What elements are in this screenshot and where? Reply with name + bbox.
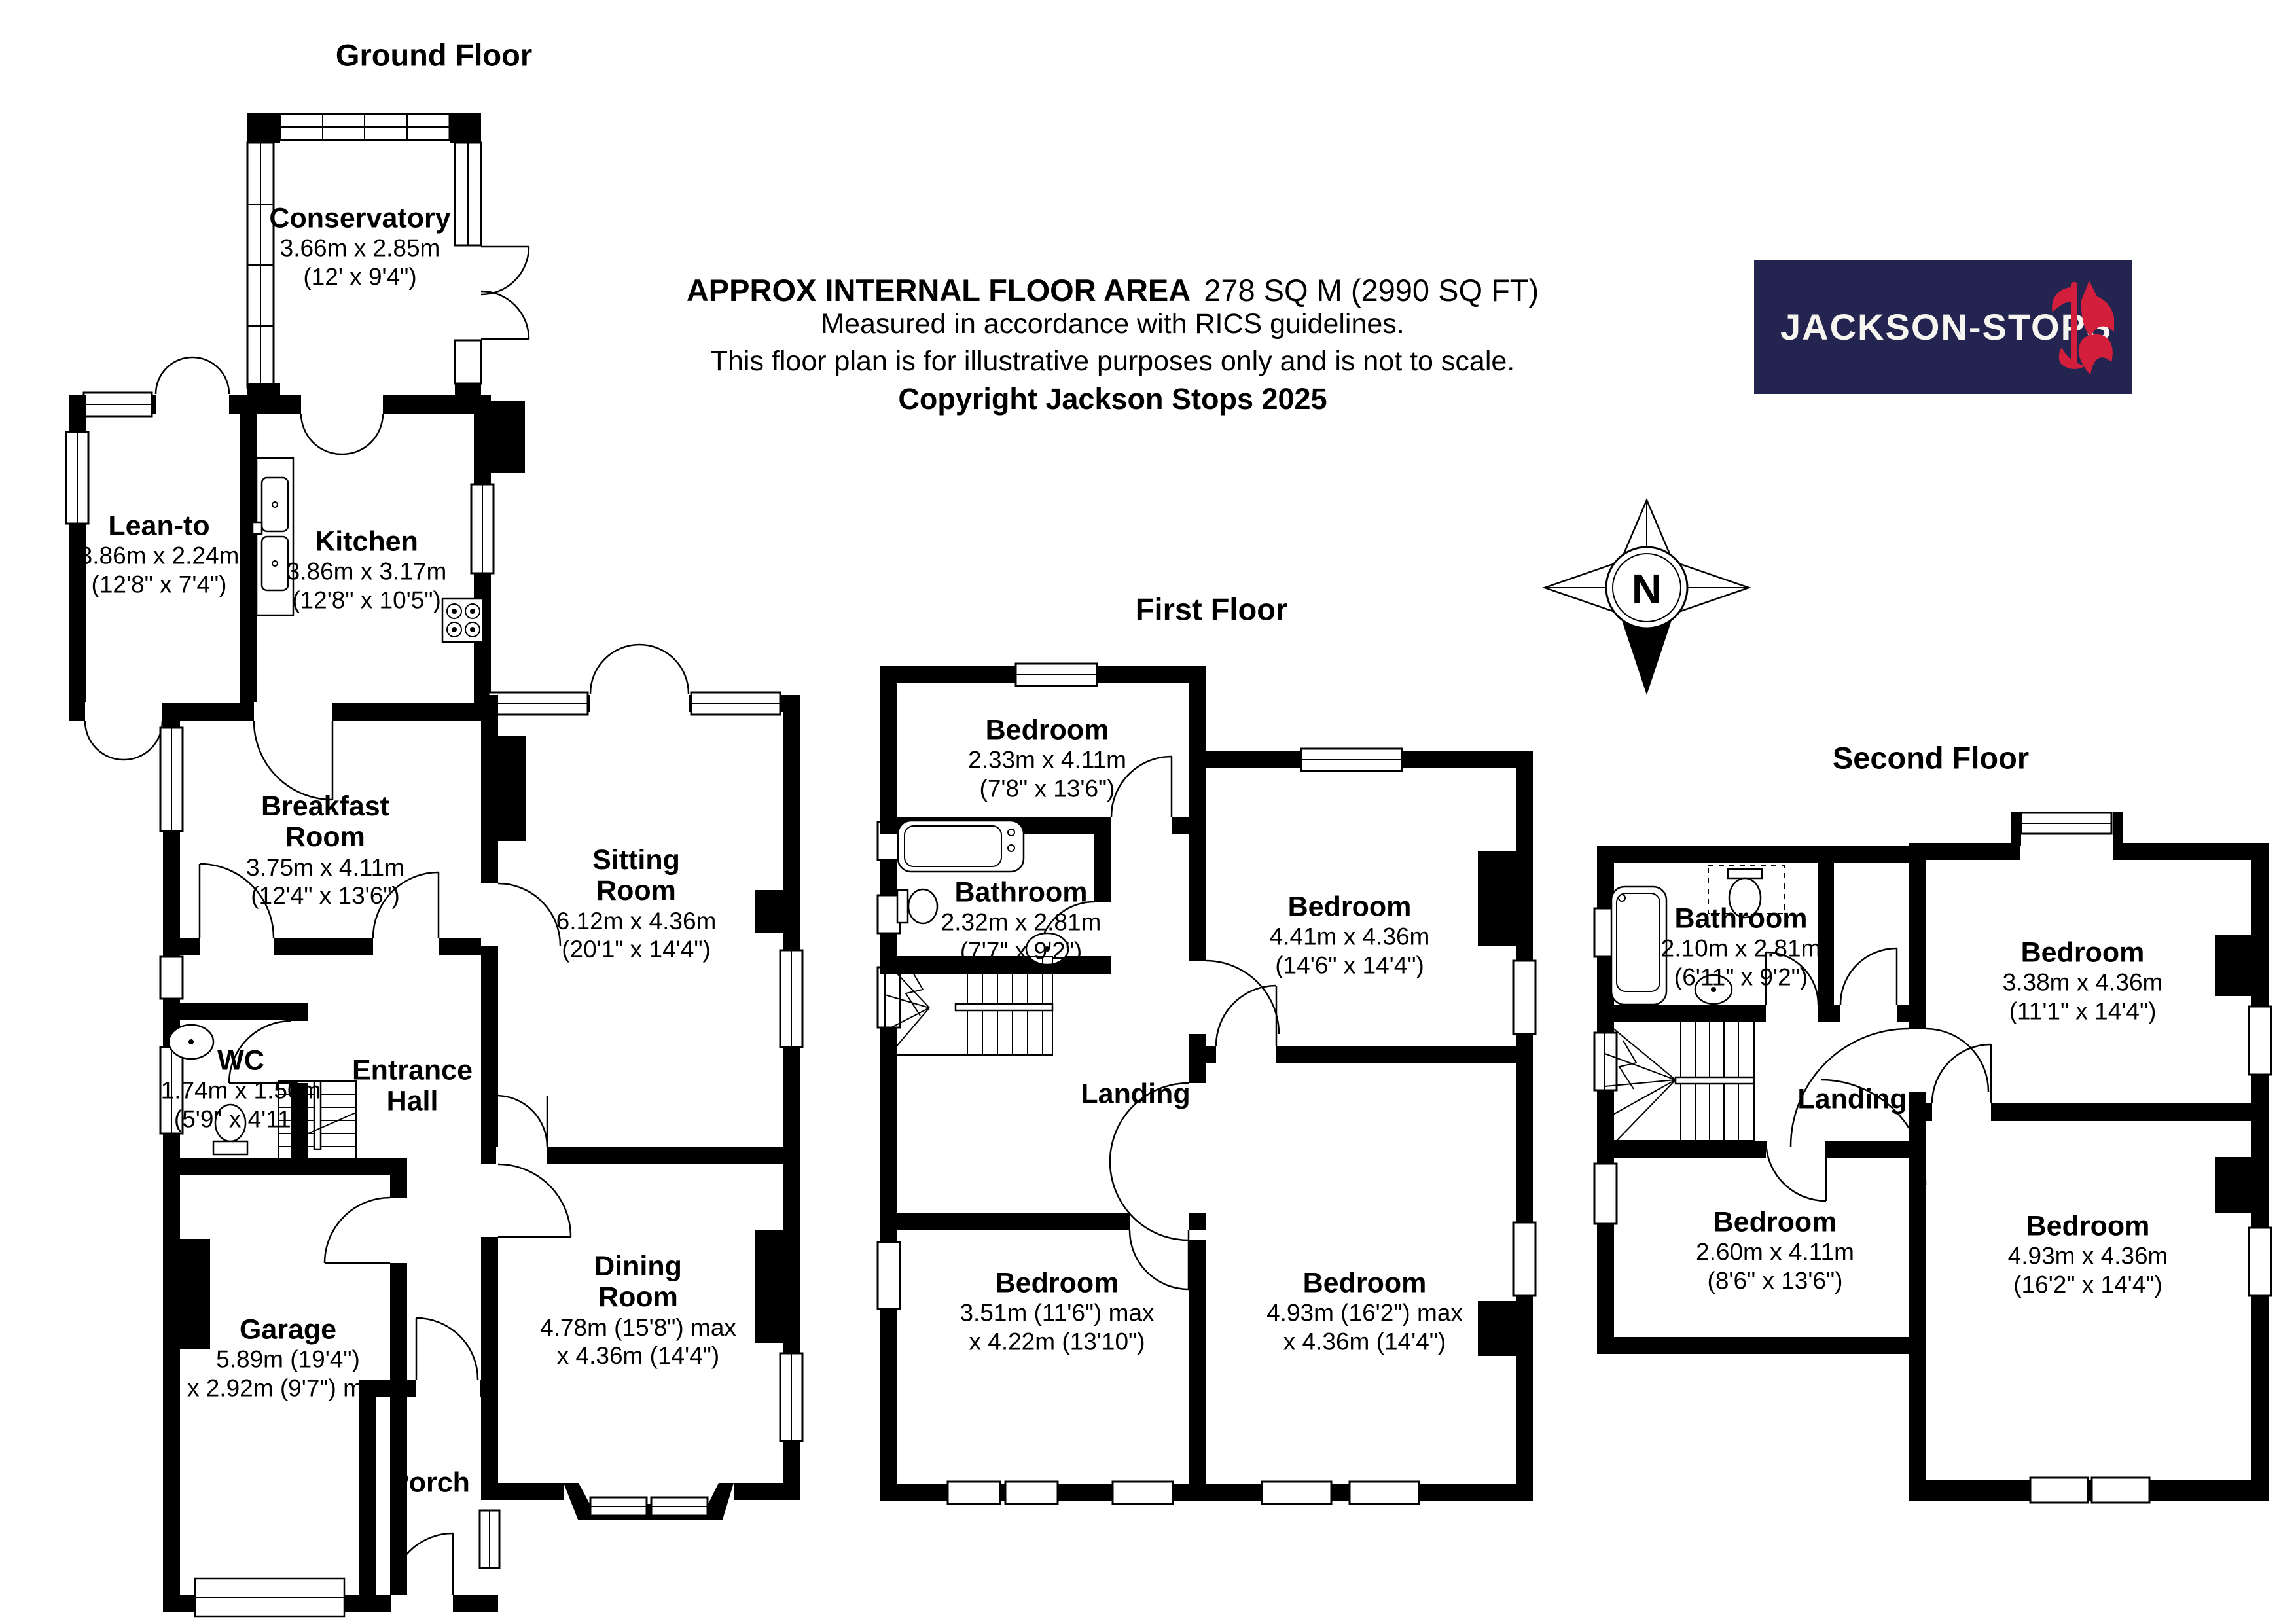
illustrative-note: This floor plan is for illustrative purp… (655, 343, 1571, 380)
floorplan-page: { "header": { "line1_bold": "APPROX INTE… (0, 0, 2296, 1623)
ff-right-column-walls (1206, 749, 1535, 1504)
room-label-wc: WC 1.74m x 1.50m (5'9" x 4'11") (161, 1046, 321, 1134)
sf-stairs (1605, 1022, 1754, 1141)
room-label-sf-bedroom-2: Bedroom 2.60m x 4.11m (8'6" x 13'6") (1696, 1207, 1854, 1296)
kitchen-hob (442, 599, 483, 642)
room-label-sf-bathroom: Bathroom 2.10m x 2.81m (6'11" x 9'2") (1661, 904, 1821, 992)
conservatory-kitchen-door (301, 414, 383, 454)
room-label-entrance-hall: Entrance Hall (344, 1056, 481, 1118)
room-label-breakfast-room: Breakfast Room 3.75m x 4.11m (12'4" x 13… (246, 791, 404, 910)
jackson-stops-logo: JACKSON-STOPS (1754, 260, 2132, 394)
room-label-ff-bedroom-2: Bedroom 4.41m x 4.36m (14'6" x 14'4") (1270, 892, 1430, 980)
conservatory-door (481, 247, 529, 339)
room-label-sf-bedroom-3: Bedroom 4.93m x 4.36m (16'2" x 14'4") (2008, 1211, 2168, 1300)
room-label-lean-to: Lean-to 3.86m x 2.24m (12'8" x 7'4") (79, 511, 240, 599)
garage-door (195, 1578, 344, 1616)
room-label-ff-bedroom-4: Bedroom 4.93m (16'2") max x 4.36m (14'4"… (1266, 1268, 1463, 1357)
room-label-ff-bedroom-3: Bedroom 3.51m (11'6") max x 4.22m (13'10… (960, 1268, 1154, 1357)
header-block: APPROX INTERNAL FLOOR AREA278 SQ M (2990… (655, 275, 1571, 419)
floor-area-line: APPROX INTERNAL FLOOR AREA278 SQ M (2990… (655, 275, 1571, 306)
main-block-walls (480, 692, 802, 1568)
room-label-ff-bedroom-1: Bedroom 2.33m x 4.11m (7'8" x 13'6") (968, 715, 1126, 804)
room-label-porch: Porch (390, 1467, 470, 1498)
room-label-ff-bathroom: Bathroom 2.32m x 2.81m (7'7" x 9'2") (941, 878, 1102, 966)
floor-area-title: APPROX INTERNAL FLOOR AREA (687, 273, 1191, 308)
fox-with-axe-icon (2036, 274, 2114, 379)
compass-north-label: N (1632, 565, 1662, 613)
room-label-kitchen: Kitchen 3.86m x 3.17m (12'8" x 10'5") (287, 527, 447, 615)
dining-room-door (498, 1164, 571, 1237)
room-label-sf-landing: Landing (1797, 1084, 1907, 1115)
room-label-dining-room: Dining Room 4.78m (15'8") max x 4.36m (1… (540, 1251, 736, 1370)
floor-area-value: 278 SQ M (2990 SQ FT) (1204, 273, 1539, 308)
room-label-garage: Garage 5.89m (19'4") x 2.92m (9'7") max (187, 1315, 389, 1403)
copyright-note: Copyright Jackson Stops 2025 (655, 380, 1571, 419)
second-floor-title: Second Floor (1833, 740, 2029, 776)
ground-floor-title: Ground Floor (336, 37, 532, 73)
room-label-conservatory: Conservatory 3.66m x 2.85m (12' x 9'4") (269, 204, 450, 292)
ff-doors-left (1039, 757, 1279, 1289)
sf-right-block-walls (1909, 811, 2271, 1503)
sf-doors-right (1932, 1044, 1991, 1103)
room-label-sitting-room: Sitting Room 6.12m x 4.36m (20'1" x 14'4… (556, 845, 717, 964)
garage-door-arc (325, 1198, 390, 1263)
room-label-sf-bedroom-1: Bedroom 3.38m x 4.36m (11'1" x 14'4") (2003, 938, 2163, 1026)
rics-note: Measured in accordance with RICS guideli… (655, 306, 1571, 343)
first-floor-title: First Floor (1136, 592, 1287, 628)
room-label-ff-landing: Landing (1081, 1079, 1190, 1109)
kitchen-breakfast-door (254, 721, 332, 800)
compass-rose: N (1545, 500, 1749, 692)
